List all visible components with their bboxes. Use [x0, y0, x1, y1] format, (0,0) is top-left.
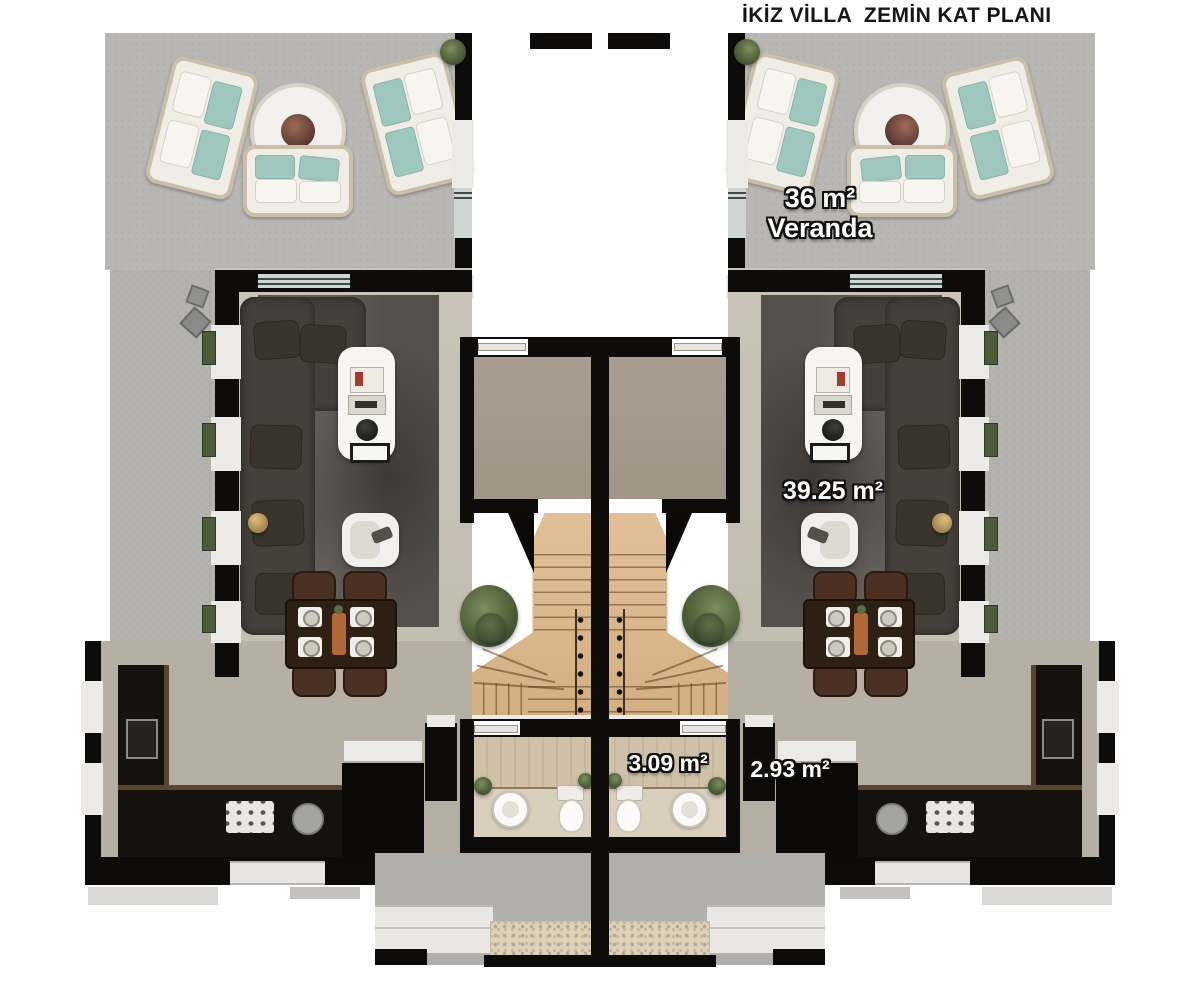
courtyard-wall — [608, 33, 670, 49]
window-planter-icon — [202, 605, 216, 633]
window-sill — [81, 763, 103, 815]
entry-door-leaf — [674, 343, 722, 351]
step-line — [375, 927, 493, 929]
tray-item — [355, 401, 377, 408]
coffee-table — [805, 347, 862, 460]
cabinet-top — [344, 741, 422, 761]
doormat — [602, 921, 710, 957]
table-tray — [810, 443, 850, 463]
stair-void — [508, 513, 534, 573]
bath-wall — [598, 837, 740, 853]
place-setting — [298, 637, 322, 657]
toilet-icon — [615, 799, 642, 833]
window-sill — [875, 861, 970, 885]
plan-title: İKİZ VİLLA ZEMİN KAT PLANI — [742, 4, 1044, 28]
place-setting — [878, 637, 902, 657]
window-planter-icon — [984, 605, 998, 633]
sofa-cushion-teal — [860, 155, 902, 183]
table-books — [816, 367, 850, 393]
entry-hall-floor — [472, 357, 593, 499]
bath-door-leaf — [474, 725, 518, 733]
paving-slab — [88, 887, 218, 905]
porch-wall — [598, 955, 716, 967]
basin-bowl — [681, 801, 698, 818]
basin-bowl — [502, 801, 519, 818]
veranda-label: 36 m² Veranda — [745, 183, 895, 243]
table-bowl — [822, 419, 844, 441]
window-glass — [454, 188, 472, 238]
table-tray — [814, 395, 852, 415]
window-planter-icon — [984, 517, 998, 551]
sofa-cushion — [253, 319, 302, 360]
book — [355, 372, 363, 386]
sofa-cushion — [249, 424, 303, 470]
coffee-table — [338, 347, 395, 460]
sink-icon — [876, 803, 908, 835]
plate — [303, 610, 320, 627]
paving-slab — [840, 887, 910, 899]
potted-plant-icon — [734, 39, 760, 65]
porch-wall — [375, 949, 427, 965]
bath-wall — [726, 719, 740, 853]
plate — [828, 640, 845, 657]
stair-void — [666, 513, 692, 573]
stair-balusters — [615, 611, 624, 719]
armchair — [342, 513, 399, 567]
table-tray — [348, 395, 386, 415]
plate — [303, 640, 320, 657]
outdoor-sofa — [243, 145, 353, 217]
porch-steps — [375, 905, 493, 953]
stair-balusters — [576, 611, 585, 719]
window-sill — [230, 861, 325, 885]
entry-door-leaf — [478, 343, 526, 351]
bath-plant-icon — [474, 777, 492, 795]
stove-icon — [226, 801, 274, 833]
window-sill — [81, 681, 103, 733]
porch-wall — [484, 955, 602, 967]
sofa-pillow — [255, 179, 297, 203]
porch-wall — [773, 949, 825, 965]
veranda-name: Veranda — [745, 213, 895, 243]
floor-lamp-icon — [248, 513, 268, 533]
window-planter-icon — [202, 423, 216, 457]
sofa-cushion — [897, 424, 951, 470]
party-wall — [598, 337, 609, 965]
stove-icon — [926, 801, 974, 833]
hall-area-label: 2.93 m² — [738, 757, 842, 783]
bath-wall — [460, 719, 474, 853]
bath-wall — [460, 837, 602, 853]
table-runner — [854, 613, 868, 655]
plate — [880, 640, 897, 657]
toilet-icon — [558, 799, 585, 833]
window-planter-icon — [202, 517, 216, 551]
dining-table — [285, 599, 397, 669]
plate — [880, 610, 897, 627]
table-centerpiece — [885, 114, 919, 148]
veranda — [105, 33, 465, 270]
sofa-pillow — [903, 179, 945, 203]
paving-slab — [290, 887, 360, 899]
indoor-plant-icon — [694, 613, 724, 643]
plate — [355, 610, 372, 627]
place-setting — [826, 607, 850, 627]
window-planter-icon — [984, 331, 998, 365]
dining-table — [803, 599, 915, 669]
table-tray — [350, 443, 390, 463]
entry-hall-floor — [607, 357, 728, 499]
place-setting — [350, 607, 374, 627]
sofa-cushion-teal — [255, 155, 295, 179]
tall-cabinet — [342, 763, 424, 857]
potted-plant-icon — [440, 39, 466, 65]
window-sill — [726, 120, 748, 188]
stair-wall — [662, 499, 740, 513]
entry-wall — [460, 337, 474, 523]
living-area-label: 39.25 m² — [772, 477, 894, 505]
step-line — [707, 927, 825, 929]
wc-area-label: 3.09 m² — [616, 751, 720, 777]
villa-left — [80, 25, 602, 965]
floor-plan-canvas: İKİZ VİLLA ZEMİN KAT PLANI 36 m² Veranda… — [0, 0, 1200, 1000]
indoor-plant-icon — [476, 613, 506, 643]
paving-slab — [982, 887, 1112, 905]
washbasin-icon — [492, 791, 529, 828]
window-planter-icon — [202, 331, 216, 365]
counter-edge — [856, 785, 1082, 790]
courtyard-wall — [530, 33, 592, 49]
table-bowl — [356, 419, 378, 441]
table-books — [350, 367, 384, 393]
veranda-area-value: 36 m² — [745, 183, 895, 213]
counter-edge — [118, 785, 344, 790]
place-setting — [350, 637, 374, 657]
table-runner — [332, 613, 346, 655]
cabinet-top — [427, 715, 455, 727]
sink-icon — [292, 803, 324, 835]
doormat — [490, 921, 598, 957]
porch-steps — [707, 905, 825, 953]
plate — [355, 640, 372, 657]
tray-item — [823, 401, 845, 408]
place-setting — [298, 607, 322, 627]
oven-icon — [1042, 719, 1074, 759]
outdoor-sofa — [940, 54, 1057, 201]
place-setting — [878, 607, 902, 627]
entry-wall — [726, 337, 740, 523]
oven-icon — [126, 719, 158, 759]
place-setting — [826, 637, 850, 657]
window-glass — [728, 188, 746, 238]
sofa-cushion-teal — [298, 155, 340, 183]
armchair — [801, 513, 858, 567]
bath-plant-icon — [708, 777, 726, 795]
table-plant-icon — [334, 605, 343, 614]
washbasin-icon — [671, 791, 708, 828]
table-centerpiece — [281, 114, 315, 148]
window-planter-icon — [984, 423, 998, 457]
window-sill — [1097, 763, 1119, 815]
sofa-cushion-teal — [905, 155, 945, 179]
window-sill — [1097, 681, 1119, 733]
hall-cabinet — [425, 723, 457, 801]
floor-lamp-icon — [932, 513, 952, 533]
sofa-cushion — [899, 319, 948, 360]
sliding-door-glass — [850, 274, 942, 288]
sliding-door-glass — [258, 274, 350, 288]
window-sill — [452, 120, 474, 188]
stair-wall — [460, 499, 538, 513]
plate — [828, 610, 845, 627]
bath-door-leaf — [682, 725, 726, 733]
cabinet-top — [745, 715, 773, 727]
sofa-pillow — [299, 181, 341, 203]
table-plant-icon — [857, 605, 866, 614]
book — [837, 372, 845, 386]
